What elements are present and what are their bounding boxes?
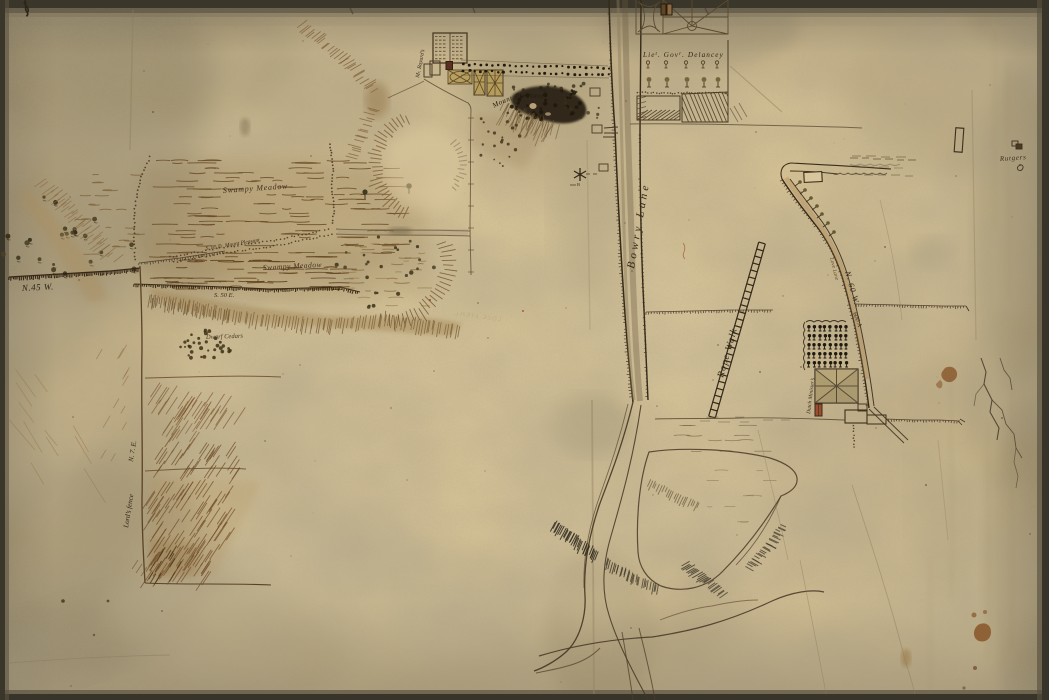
- svg-text:S. 50 E.: S. 50 E.: [214, 292, 235, 299]
- svg-text:Liet. Govr. Delancey: Liet. Govr. Delancey: [642, 51, 724, 59]
- svg-text:Dwarf Cedars: Dwarf Cedars: [205, 333, 244, 341]
- svg-text:N.45 W.: N.45 W.: [21, 281, 54, 293]
- svg-text:B: B: [577, 182, 580, 187]
